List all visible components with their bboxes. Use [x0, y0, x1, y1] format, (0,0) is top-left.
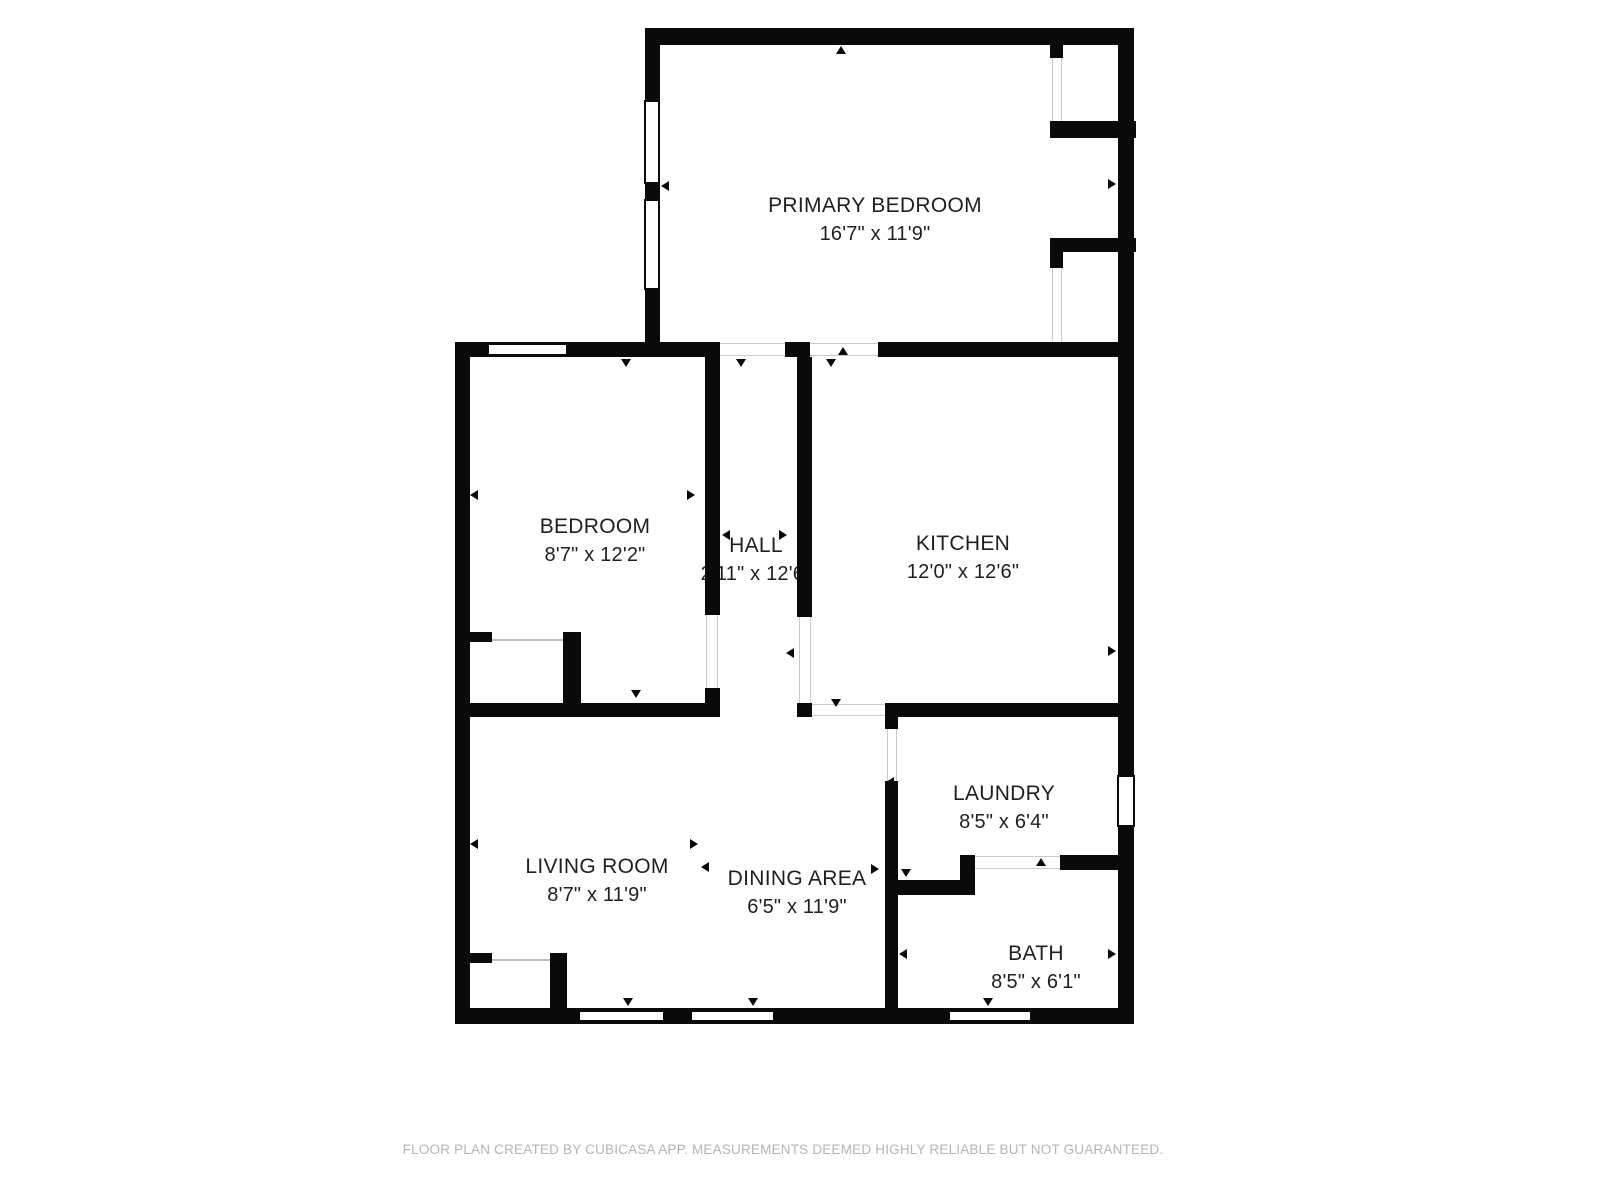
- room-dimensions: 8'5" x 6'1": [991, 968, 1081, 996]
- marker-arrow-icon: [690, 839, 698, 849]
- marker-arrow-icon: [1036, 858, 1046, 866]
- marker-arrow-icon: [901, 869, 911, 877]
- wall-outer-left: [455, 342, 470, 1008]
- marker-arrow-icon: [722, 530, 730, 540]
- primary-bedroom-window-upper: [644, 100, 660, 184]
- wall-bedroom-closet-side: [563, 632, 581, 703]
- marker-arrow-icon: [470, 839, 478, 849]
- dining-window-left: [578, 1010, 665, 1022]
- room-name: LAUNDRY: [953, 780, 1055, 808]
- right-notch-door-line: [1061, 268, 1062, 342]
- hall-top-opening-line: [720, 343, 785, 344]
- room-label-dining-area: DINING AREA 6'5" x 11'9": [728, 865, 867, 921]
- room-dimensions: 6'5" x 11'9": [728, 893, 867, 921]
- laundry-door-line: [887, 729, 888, 781]
- room-dimensions: 8'7" x 12'2": [540, 541, 651, 569]
- marker-arrow-icon: [748, 998, 758, 1006]
- kitchen-top-opening-line: [810, 355, 878, 356]
- wall-laundry-left-stub: [885, 703, 898, 729]
- marker-arrow-icon: [915, 706, 925, 714]
- marker-arrow-icon: [736, 359, 746, 367]
- laundry-window: [1117, 775, 1135, 827]
- marker-arrow-icon: [779, 530, 787, 540]
- marker-arrow-icon: [826, 359, 836, 367]
- room-name: KITCHEN: [907, 530, 1019, 558]
- marker-arrow-icon: [1108, 949, 1116, 959]
- wall-living-closet-side: [550, 953, 567, 1010]
- wall-laundry-bath-left: [885, 781, 898, 1024]
- wall-outer-bottom: [455, 1008, 1134, 1024]
- marker-arrow-icon: [899, 949, 907, 959]
- wall-primary-bedroom-left: [645, 28, 660, 357]
- marker-arrow-icon: [631, 705, 641, 713]
- room-dimensions: 12'0" x 12'6": [907, 558, 1019, 586]
- right-notch-door-line: [1052, 268, 1053, 342]
- marker-arrow-icon: [836, 46, 846, 54]
- wall-kitchen-top-right: [878, 342, 1134, 357]
- bedroom-door-line: [706, 615, 707, 688]
- wall-hall-right-stub: [797, 703, 812, 717]
- living-closet-front-line: [492, 959, 550, 961]
- room-label-living-room: LIVING ROOM 8'7" x 11'9": [525, 853, 668, 909]
- room-label-primary-bedroom: PRIMARY BEDROOM 16'7" x 11'9": [768, 192, 982, 248]
- room-label-laundry: LAUNDRY 8'5" x 6'4": [953, 780, 1055, 836]
- marker-arrow-icon: [470, 490, 478, 500]
- hall-dining-opening-line: [812, 704, 885, 705]
- kitchen-dining-opening-line: [799, 617, 800, 703]
- marker-arrow-icon: [621, 359, 631, 367]
- marker-arrow-icon: [687, 490, 695, 500]
- marker-arrow-icon: [1108, 179, 1116, 189]
- room-dimensions: 8'5" x 6'4": [953, 808, 1055, 836]
- footer-disclaimer: FLOOR PLAN CREATED BY CUBICASA APP. MEAS…: [403, 1141, 1164, 1158]
- wall-laundry-bath-divider-step: [960, 855, 975, 895]
- wall-right-notch-top: [1050, 238, 1136, 252]
- bath-door-line: [975, 868, 1060, 869]
- wall-kitchen-top-left: [785, 342, 810, 357]
- hall-top-opening-line: [720, 355, 785, 356]
- floor-plan-canvas: PRIMARY BEDROOM 16'7" x 11'9" BEDROOM 8'…: [0, 0, 1600, 1200]
- wall-outer-right-upper: [1118, 28, 1134, 775]
- room-dimensions: 16'7" x 11'9": [768, 220, 982, 248]
- bedroom-door-line: [717, 615, 718, 688]
- bedroom-closet-front-line: [492, 639, 563, 641]
- wall-bedroom-closet-stub: [470, 632, 492, 642]
- wall-top-right-closet-stub: [1050, 45, 1063, 58]
- marker-arrow-icon: [838, 347, 848, 355]
- hall-dining-opening-line: [812, 715, 885, 716]
- bath-window: [948, 1010, 1032, 1022]
- room-label-bedroom: BEDROOM 8'7" x 12'2": [540, 513, 651, 569]
- wall-hall-right: [797, 357, 812, 617]
- bedroom-window: [487, 343, 568, 356]
- room-name: BATH: [991, 940, 1081, 968]
- room-name: BEDROOM: [540, 513, 651, 541]
- room-name: LIVING ROOM: [525, 853, 668, 881]
- wall-living-closet-stub: [470, 953, 492, 963]
- room-label-bath: BATH 8'5" x 6'1": [991, 940, 1081, 996]
- room-name: PRIMARY BEDROOM: [768, 192, 982, 220]
- wall-laundry-bath-divider-right: [1060, 855, 1134, 870]
- wall-hall-left-upper: [705, 357, 720, 615]
- marker-arrow-icon: [871, 864, 879, 874]
- marker-arrow-icon: [631, 690, 641, 698]
- marker-arrow-icon: [831, 699, 841, 707]
- marker-arrow-icon: [1108, 646, 1116, 656]
- dining-window-right: [690, 1010, 775, 1022]
- wall-right-notch-stub: [1050, 252, 1063, 268]
- marker-arrow-icon: [623, 998, 633, 1006]
- wall-outer-top: [645, 28, 1134, 45]
- laundry-door-line: [896, 729, 897, 781]
- top-right-closet-door-line: [1052, 58, 1053, 121]
- room-label-kitchen: KITCHEN 12'0" x 12'6": [907, 530, 1019, 586]
- marker-arrow-icon: [661, 181, 669, 191]
- kitchen-top-opening-line: [810, 343, 878, 344]
- room-dimensions: 8'7" x 11'9": [525, 881, 668, 909]
- room-name: DINING AREA: [728, 865, 867, 893]
- kitchen-dining-opening-line: [810, 617, 811, 703]
- wall-living-room-top: [455, 703, 720, 717]
- wall-laundry-bath-divider-left: [885, 880, 966, 895]
- marker-arrow-icon: [701, 862, 709, 872]
- marker-arrow-icon: [786, 648, 794, 658]
- wall-top-right-closet-bottom: [1050, 121, 1136, 138]
- marker-arrow-icon: [886, 777, 894, 787]
- bath-door-line: [975, 856, 1060, 857]
- marker-arrow-icon: [983, 998, 993, 1006]
- primary-bedroom-window-lower: [644, 199, 660, 290]
- top-right-closet-door-line: [1061, 58, 1062, 121]
